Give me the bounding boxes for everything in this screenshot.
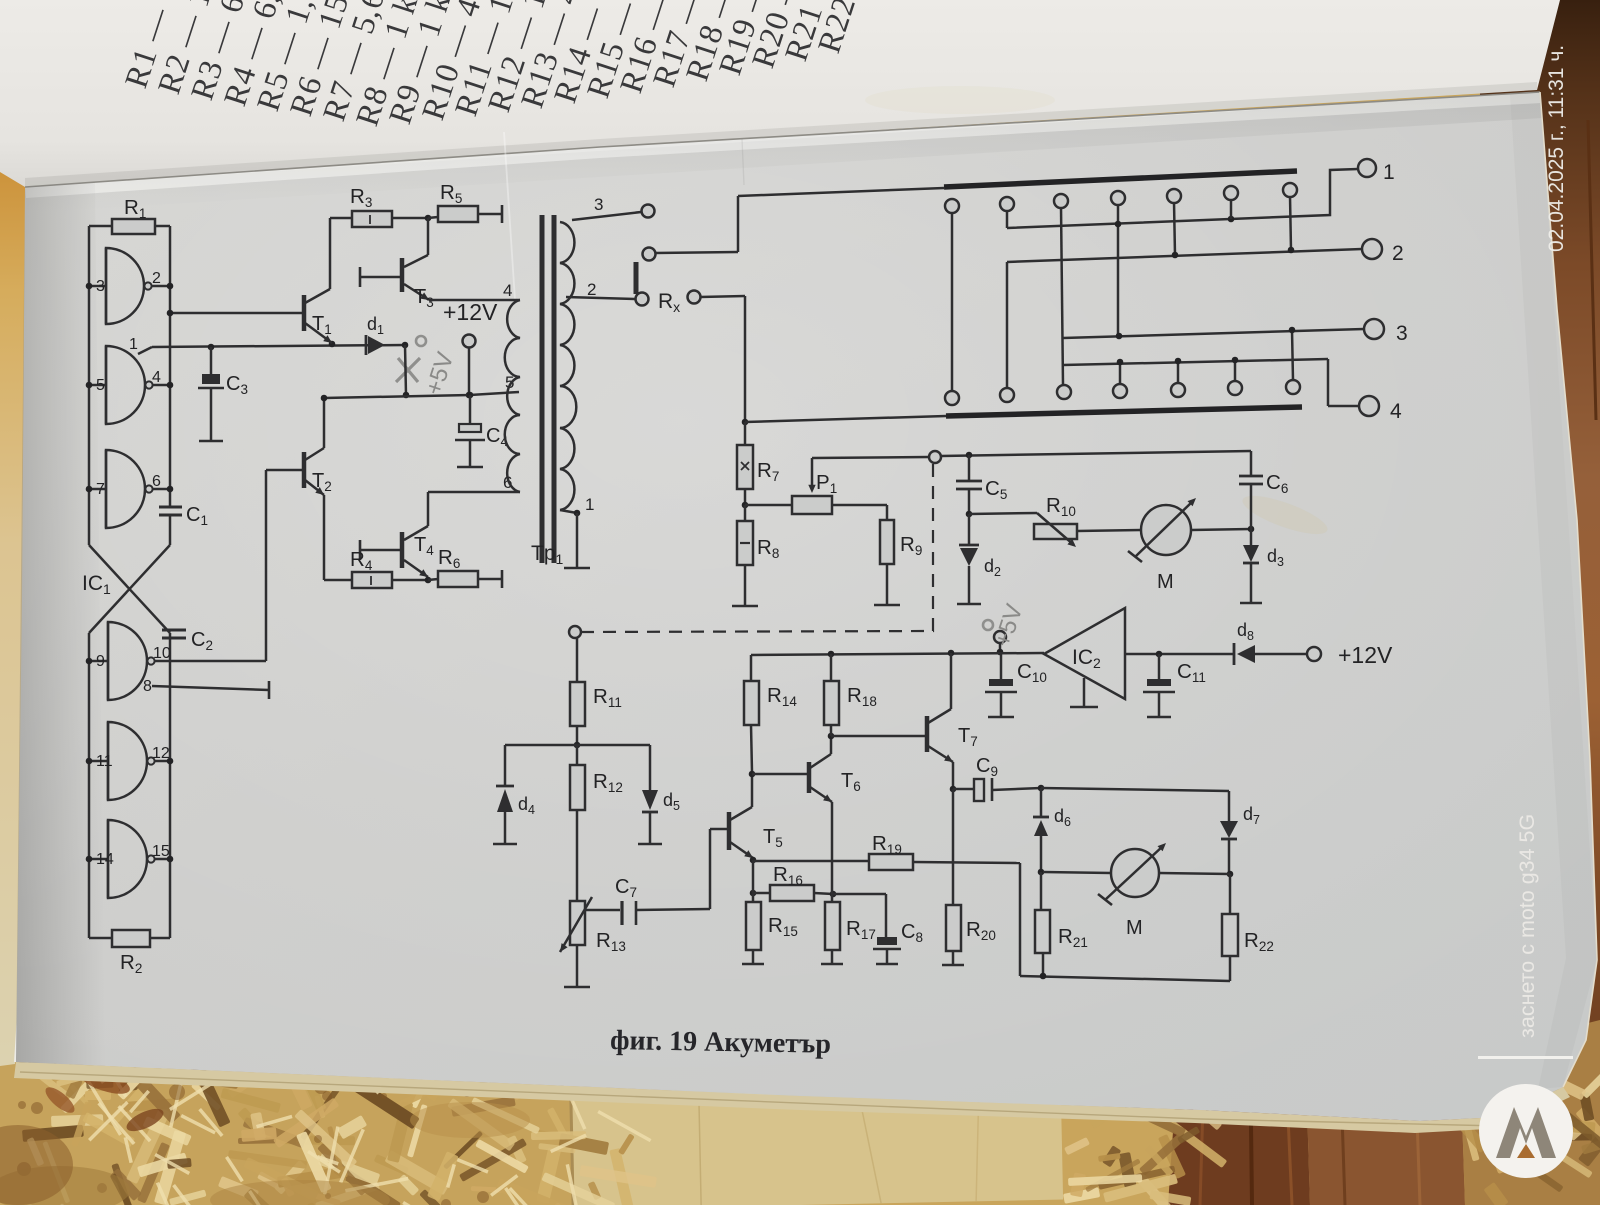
svg-text:фиг. 19 Акуметър: фиг. 19 Акуметър — [610, 1025, 831, 1060]
svg-text:8: 8 — [143, 678, 152, 695]
svg-text:02.04.2025 г., 11:31 ч.: 02.04.2025 г., 11:31 ч. — [1545, 45, 1568, 252]
svg-text:7: 7 — [96, 481, 105, 498]
svg-text:+12V: +12V — [443, 299, 498, 325]
svg-text:1: 1 — [585, 495, 594, 514]
svg-text:заснето с moto g34 5G: заснето с moto g34 5G — [1515, 814, 1539, 1038]
svg-text:1: 1 — [1383, 161, 1395, 184]
svg-text:5: 5 — [96, 377, 105, 394]
svg-text:2: 2 — [1392, 242, 1404, 265]
svg-text:14: 14 — [96, 851, 114, 868]
svg-text:M: M — [1126, 917, 1143, 939]
svg-text:10: 10 — [153, 645, 171, 662]
svg-text:+12V: +12V — [1338, 642, 1393, 668]
svg-text:11: 11 — [96, 753, 113, 770]
svg-text:15: 15 — [152, 843, 170, 860]
svg-text:4: 4 — [152, 369, 161, 386]
svg-text:2: 2 — [587, 280, 596, 299]
svg-text:2: 2 — [152, 270, 161, 287]
svg-text:12: 12 — [152, 745, 170, 762]
svg-text:9: 9 — [96, 653, 105, 670]
svg-text:6: 6 — [152, 473, 161, 490]
svg-text:3: 3 — [96, 278, 105, 295]
svg-text:1: 1 — [129, 336, 138, 353]
svg-text:4: 4 — [1390, 400, 1402, 423]
svg-text:3: 3 — [1396, 322, 1408, 345]
svg-text:4: 4 — [503, 281, 512, 300]
svg-text:3: 3 — [594, 195, 603, 214]
svg-text:M: M — [1157, 571, 1174, 593]
